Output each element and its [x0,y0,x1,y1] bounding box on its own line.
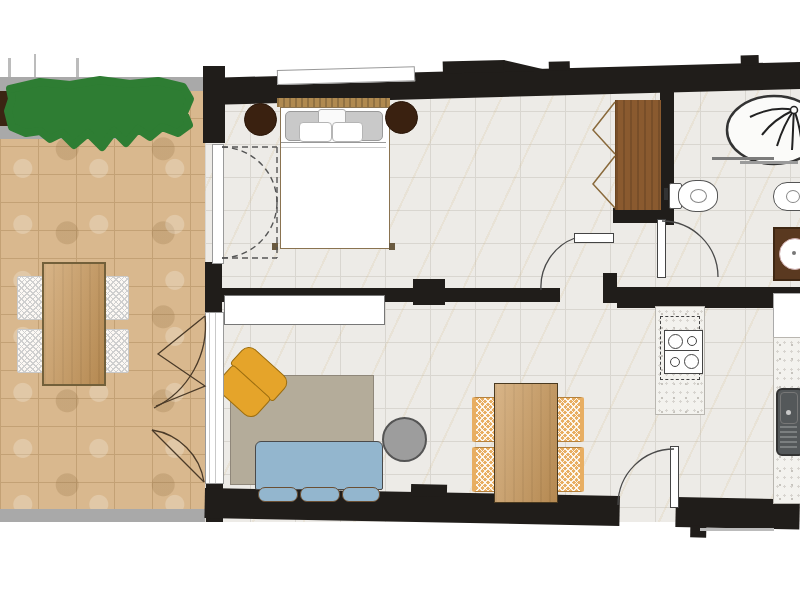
sofa-cushion [300,487,340,502]
bidet [773,182,800,211]
toilet-bowl [678,180,718,212]
bedroom-door-swing [540,237,580,293]
cooktop [664,330,703,374]
shower-glass-screen [740,161,798,164]
kitchen-sink [776,388,800,456]
floor-plan-canvas [0,0,800,600]
entrance-step [700,528,774,531]
dining-chair [555,447,584,492]
bed-foot [389,243,395,250]
french-door-swing [222,145,282,261]
terrace-chair [103,329,129,373]
terrace-table [42,262,106,386]
wall-column [413,279,445,305]
bedroom-window [277,66,415,85]
sink-faucet [786,410,791,415]
sink-drainboard [780,426,797,450]
hedge [0,75,205,170]
bed-duvet [281,142,386,148]
wall-pier [549,61,570,71]
wall-pier-slant [504,59,550,72]
washing-machine-door [779,238,800,270]
wall-pier [443,60,505,74]
bed-pillow-white [299,122,332,142]
terrace-chair [17,276,43,320]
toilet [664,180,716,211]
bedroom-door-leaf [574,233,614,243]
burner-large [684,354,699,369]
bed-headboard [277,98,390,107]
toilet-flush-button [664,188,668,200]
sofa [255,441,383,490]
wall-column [411,484,447,497]
sofa-cushion [258,487,298,502]
bed-pillow-white [332,122,363,142]
wall-pier [741,55,759,65]
terrace-chair [103,276,129,320]
dining-table [494,383,558,503]
bedside-stool [385,101,418,134]
kitchen-appliance [773,293,800,339]
bifold-door-swing [148,312,208,484]
bathroom-door-swing [661,220,719,278]
burner-small [670,357,680,367]
burner-small [687,336,697,346]
entrance-door-swing [617,448,675,506]
sofa-cushion [342,487,380,502]
door-jamb [603,273,617,303]
terrace-corner-pier [203,66,225,143]
sink-basin [780,392,798,424]
bed [280,107,390,249]
wardrobe [615,100,661,210]
terrace-chair [17,329,43,373]
wardrobe-folding-doors [588,100,616,210]
bedside-stool [244,103,277,136]
terrace-curb-bottom [0,509,205,522]
sideboard [224,295,385,325]
washing-machine [773,227,800,281]
shower-glass-screen [712,157,774,160]
coffee-table [382,417,427,462]
burner-large [668,334,683,349]
dining-chair [555,397,584,442]
wardrobe-niche-wall [613,208,660,223]
